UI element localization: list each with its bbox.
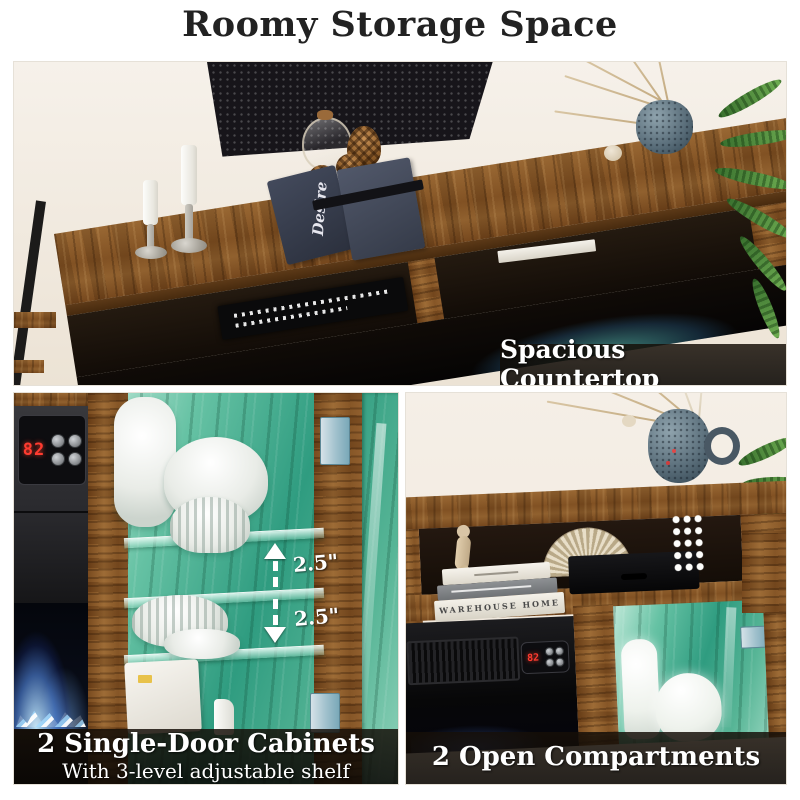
flame-button-icon <box>555 646 564 655</box>
compartments-caption: 2 Open Compartments <box>432 743 760 773</box>
arrow-dashed-tail <box>273 599 278 625</box>
vase-texture <box>636 100 693 154</box>
beaded-garland-decor <box>670 512 707 575</box>
dried-seed-pod <box>622 415 636 427</box>
vase-texture <box>648 409 710 483</box>
fireplace-opening <box>14 603 88 729</box>
candle-short <box>143 180 158 225</box>
page-title: Roomy Storage Space <box>0 4 800 45</box>
fireplace-control-panel: 82 <box>18 415 86 485</box>
shelf-gap-arrow-down <box>264 597 286 643</box>
cabinets-subcaption: With 3-level adjustable shelf <box>62 759 350 783</box>
fireplace-buttons <box>545 647 564 668</box>
candle-tall <box>181 145 197 205</box>
shelf-gap-label-lower: 2.5" <box>293 603 340 631</box>
fireplace-buttons <box>51 434 81 466</box>
fire-crystals <box>16 709 86 727</box>
thermostat-display: 82 <box>527 652 540 664</box>
gray-jug-vase <box>648 409 710 483</box>
arrow-down-icon <box>264 627 286 643</box>
panel-compartments-photo: WAREHOUSE HOME 82 <box>406 393 786 784</box>
temp-down-button-icon <box>555 657 564 666</box>
cloche-cork <box>317 110 333 120</box>
side-shelf-board <box>14 312 56 328</box>
candle-holder-short <box>135 246 167 259</box>
book-top-text-line <box>475 571 518 576</box>
lower-section-group: 82 <box>406 596 786 753</box>
panel-countertop-photo: Desire Spacious Countertop <box>14 62 786 385</box>
shelf-gap-arrow-up <box>264 543 286 589</box>
media-device-lights-2 <box>235 306 347 328</box>
power-button-icon <box>51 434 65 448</box>
vase-handle <box>704 427 740 465</box>
cabinets-caption-band: 2 Single-Door Cabinets With 3-level adju… <box>14 729 398 784</box>
white-bowl-bottom <box>164 629 240 659</box>
white-bowl-ribbed <box>170 497 250 553</box>
power-button-icon <box>545 647 554 656</box>
candlestick-tall <box>185 204 193 242</box>
glass-door-streak <box>721 607 736 727</box>
door-hinge-top <box>320 417 350 465</box>
vase-red-dot <box>666 461 670 465</box>
candle-holder-tall <box>171 238 207 253</box>
white-vase-tall <box>620 638 660 739</box>
fireplace-column: 82 <box>14 393 88 784</box>
fireplace-vent-grille <box>406 636 520 685</box>
decor-book-right <box>337 157 426 260</box>
cabinets-caption: 2 Single-Door Cabinets <box>37 730 375 760</box>
center-pillar <box>573 604 619 746</box>
compartment-divider <box>408 258 444 323</box>
gray-vase <box>636 100 693 154</box>
book-middle-text-line <box>452 585 531 593</box>
flame-button-icon <box>68 434 82 448</box>
right-side-panel <box>742 533 786 613</box>
white-canister <box>114 397 176 527</box>
box-label <box>138 675 152 683</box>
dried-seed-ball <box>604 145 622 161</box>
compartments-caption-band: 2 Open Compartments <box>406 732 786 784</box>
panel-cabinets-photo: 82 2.5" <box>14 393 398 784</box>
temp-up-button-icon <box>545 658 554 667</box>
shelf-gap-label-upper: 2.5" <box>292 549 339 577</box>
countertop-label-band: Spacious Countertop <box>500 344 786 385</box>
product-infographic: Roomy Storage Space <box>0 0 800 800</box>
arrow-up-icon <box>264 543 286 559</box>
temp-up-button-icon <box>51 452 65 466</box>
door-hinge-bottom <box>310 693 340 733</box>
arrow-dashed-tail <box>273 561 278 587</box>
side-shelf-board-2 <box>14 360 44 373</box>
led-cabinet-interior <box>613 600 769 744</box>
vase-red-dot <box>672 449 676 453</box>
white-box <box>124 659 202 735</box>
temp-down-button-icon <box>68 452 82 466</box>
countertop-label: Spacious Countertop <box>500 336 786 385</box>
fireplace-control-panel: 82 <box>521 640 570 674</box>
box-handle <box>621 573 647 580</box>
thermostat-display: 82 <box>23 440 45 460</box>
fireplace-seam <box>14 511 88 513</box>
fireplace-top-trim <box>14 393 88 406</box>
